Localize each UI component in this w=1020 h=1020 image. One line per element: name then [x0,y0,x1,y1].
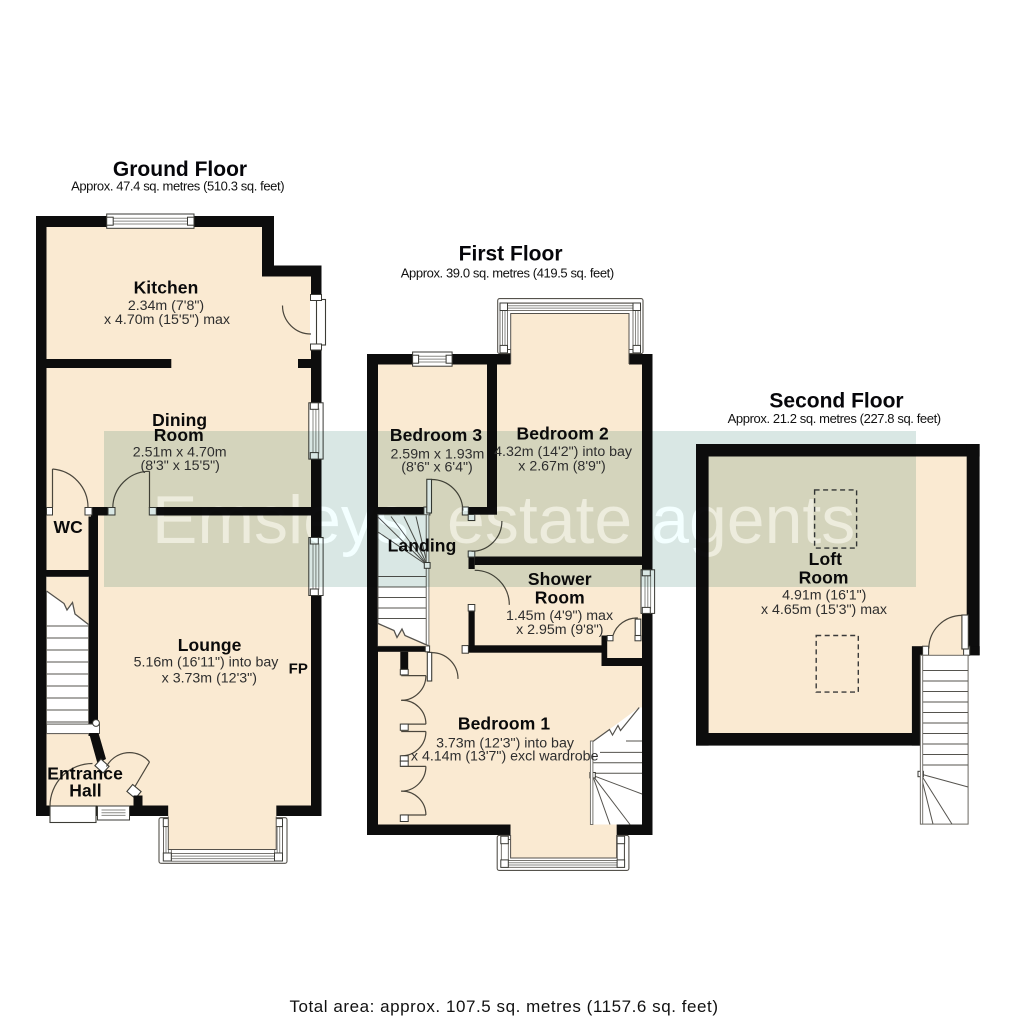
svg-text:Ground Floor: Ground Floor [113,158,247,181]
svg-text:Loft: Loft [809,549,843,569]
svg-text:Approx. 39.0 sq. metres (419.5: Approx. 39.0 sq. metres (419.5 sq. feet) [401,266,614,281]
svg-text:Bedroom 2: Bedroom 2 [517,424,609,444]
svg-text:Room: Room [535,587,585,607]
svg-text:x 3.73m (12'3"): x 3.73m (12'3") [162,671,257,687]
svg-text:FP: FP [289,661,308,678]
svg-text:WC: WC [54,517,84,537]
svg-text:x 4.70m (15'5") max: x 4.70m (15'5") max [104,312,230,328]
svg-text:(8'6" x 6'4"): (8'6" x 6'4") [401,460,472,476]
svg-text:Kitchen: Kitchen [134,278,199,298]
svg-text:Bedroom 3: Bedroom 3 [390,425,482,445]
svg-text:Lounge: Lounge [178,635,242,655]
svg-text:Second Floor: Second Floor [769,390,903,413]
svg-text:Room: Room [154,425,204,445]
svg-text:Room: Room [799,567,849,587]
svg-text:First Floor: First Floor [459,243,563,266]
svg-text:5.16m (16'11") into bay: 5.16m (16'11") into bay [134,655,280,671]
svg-text:estate agents: estate agents [447,482,855,558]
svg-text:x 2.67m (8'9"): x 2.67m (8'9") [518,459,605,475]
svg-text:Hall: Hall [69,781,102,801]
svg-text:Shower: Shower [528,569,592,589]
svg-text:Total area: approx. 107.5 sq.: Total area: approx. 107.5 sq. metres (11… [289,997,718,1016]
svg-text:x 4.65m (15'3") max: x 4.65m (15'3") max [761,602,887,618]
svg-text:Approx. 21.2 sq. metres (227.8: Approx. 21.2 sq. metres (227.8 sq. feet) [728,411,941,426]
svg-text:Landing: Landing [388,536,457,556]
svg-text:Emsleys: Emsleys [152,482,409,558]
svg-text:x 4.14m (13'7") excl wardrobe: x 4.14m (13'7") excl wardrobe [411,749,599,765]
svg-text:Bedroom 1: Bedroom 1 [458,713,550,733]
svg-text:Approx. 47.4 sq. metres (510.3: Approx. 47.4 sq. metres (510.3 sq. feet) [71,179,284,194]
svg-text:(8'3" x 15'5"): (8'3" x 15'5") [141,458,220,474]
svg-text:x 2.95m (9'8"): x 2.95m (9'8") [516,622,603,638]
